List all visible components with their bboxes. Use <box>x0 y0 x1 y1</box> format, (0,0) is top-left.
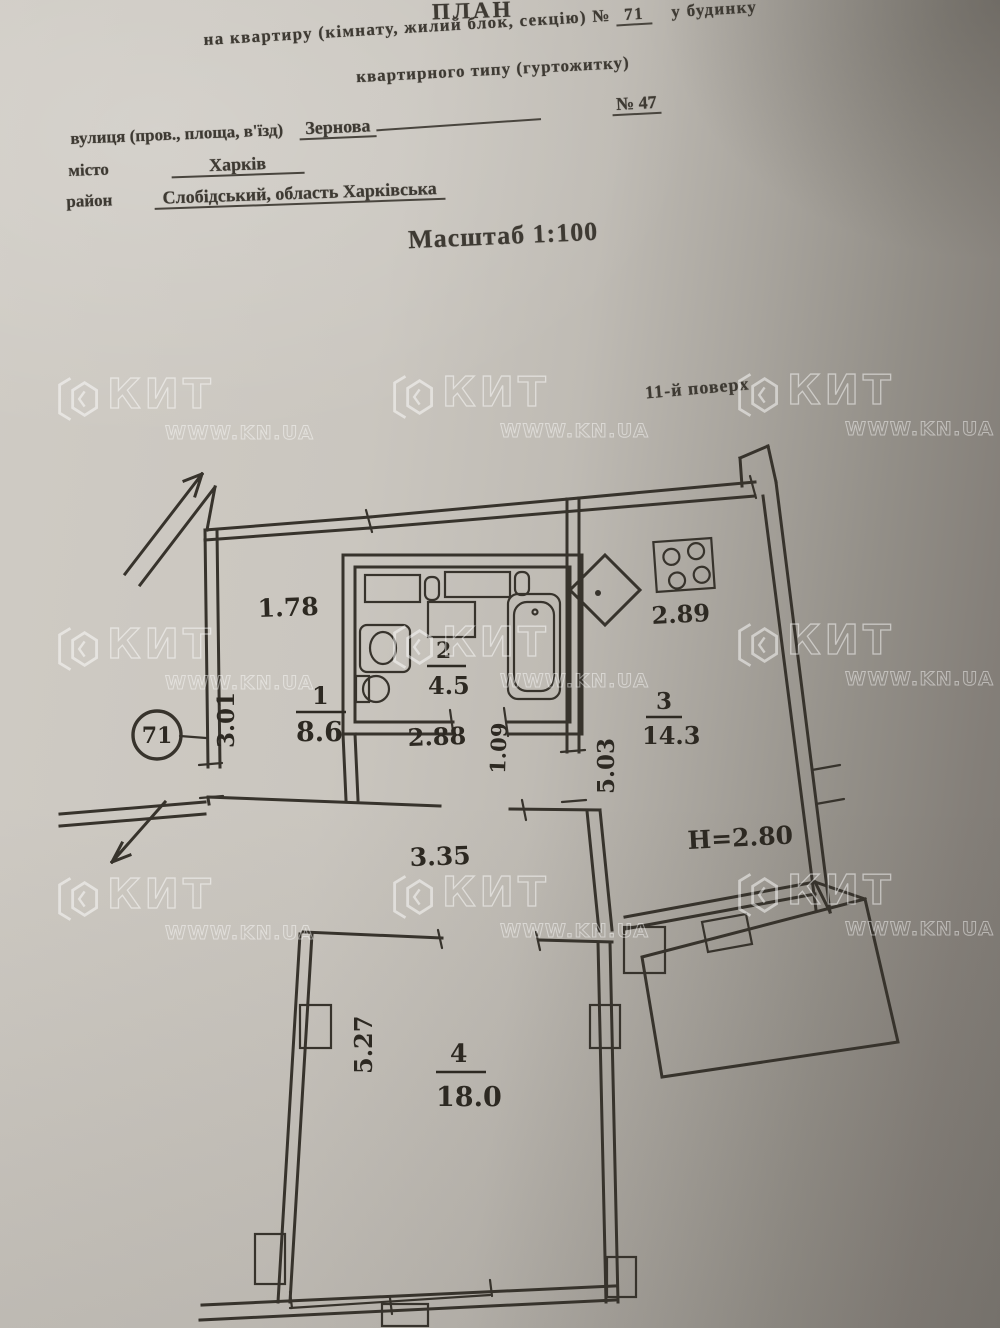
subtitle-suffix: у будинку <box>671 0 758 21</box>
watermark: КИТ WWW.KN.UA <box>735 368 985 448</box>
toilet-icon <box>363 676 389 702</box>
watermark-brand: КИТ <box>107 370 215 418</box>
dim-room1-width: 1.78 <box>257 592 319 623</box>
city-value: Харків <box>171 152 305 179</box>
apartment-circle-number: 71 <box>142 723 173 749</box>
label-room4-area: 18.0 <box>436 1082 502 1113</box>
kit-logo-icon <box>390 372 434 422</box>
floor-plan: 71 1.78 3.01 1 8.6 2 4.5 2.88 1.09 2.89 … <box>50 440 920 1328</box>
street-row: вулиця (пров., площа, в'їзд) Зернова <box>70 108 542 149</box>
dim-room2-width: 2.88 <box>407 721 466 752</box>
kit-logo-icon <box>55 374 99 424</box>
label-room1-area: 8.6 <box>296 717 343 748</box>
label-room2-area: 4.5 <box>428 671 470 700</box>
city-label: місто <box>68 160 109 180</box>
watermark: КИТ WWW.KN.UA <box>390 370 640 450</box>
floor-note: 11-й поверх <box>644 373 750 403</box>
dim-hall-width: 3.35 <box>409 841 471 872</box>
dim-bath-door: 1.09 <box>485 722 512 774</box>
dim-room3-depth: 5.03 <box>593 738 620 794</box>
street-blank-line <box>376 118 541 131</box>
label-ceiling-height: Н=2.80 <box>687 821 794 855</box>
subtitle-prefix: на квартиру (кімнату, жилий блок, секцію… <box>203 6 611 49</box>
dim-room1-depth: 3.01 <box>213 692 240 748</box>
watermark-url: WWW.KN.UA <box>500 420 649 442</box>
plan-walls <box>60 446 898 1326</box>
label-room2-number: 2 <box>436 638 451 664</box>
subtitle-line2: квартирного типу (гуртожитку) <box>356 53 631 87</box>
watermark-url: WWW.KN.UA <box>845 418 994 440</box>
scale-note: Масштаб 1:100 <box>407 217 598 256</box>
stove-icon <box>653 538 714 592</box>
district-row: район Слобідський, область Харківська <box>66 178 445 212</box>
label-room3-area: 14.3 <box>642 721 700 750</box>
scanned-floor-plan-document: ПЛАН на квартиру (кімнату, жилий блок, с… <box>0 0 1000 1328</box>
building-number: № 47 <box>611 92 661 116</box>
watermark-brand: КИТ <box>787 366 895 414</box>
watermark-brand: КИТ <box>442 368 550 416</box>
plan-labels: 71 1.78 3.01 1 8.6 2 4.5 2.88 1.09 2.89 … <box>142 592 794 1113</box>
label-room1-number: 1 <box>312 681 329 710</box>
label-room4-number: 4 <box>450 1039 467 1068</box>
city-row: місто Харків <box>68 152 304 181</box>
street-value: Зернова <box>299 115 377 140</box>
subtitle-apartment-no: 71 <box>616 3 653 26</box>
district-label: район <box>66 190 113 211</box>
label-room3-number: 3 <box>656 688 672 715</box>
dim-room4-depth: 5.27 <box>349 1016 378 1074</box>
district-value: Слобідський, область Харківська <box>154 178 445 210</box>
street-label: вулиця (пров., площа, в'їзд) <box>70 120 283 148</box>
dim-room3-width: 2.89 <box>651 598 711 630</box>
